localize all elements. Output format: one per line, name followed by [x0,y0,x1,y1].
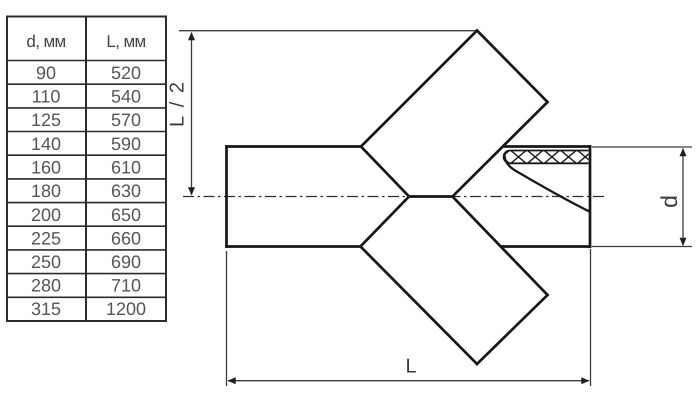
svg-text:d: d [656,195,682,208]
svg-text:160: 160 [31,158,61,178]
svg-text:520: 520 [111,63,141,83]
svg-text:1200: 1200 [106,299,146,319]
svg-text:200: 200 [31,205,61,225]
svg-text:250: 250 [31,252,61,272]
svg-text:590: 590 [111,134,141,154]
svg-text:125: 125 [31,110,61,130]
svg-text:690: 690 [111,252,141,272]
svg-text:570: 570 [111,110,141,130]
svg-text:L: L [405,356,416,378]
svg-text:650: 650 [111,205,141,225]
svg-text:630: 630 [111,181,141,201]
svg-text:d, мм: d, мм [26,32,65,51]
svg-text:610: 610 [111,158,141,178]
svg-text:180: 180 [31,181,61,201]
svg-text:90: 90 [36,63,56,83]
svg-text:540: 540 [111,87,141,107]
svg-text:140: 140 [31,134,61,154]
svg-text:225: 225 [31,229,61,249]
svg-text:710: 710 [111,276,141,296]
svg-text:280: 280 [31,276,61,296]
svg-text:110: 110 [32,87,61,107]
svg-text:315: 315 [31,299,61,319]
svg-text:L, мм: L, мм [106,32,145,51]
svg-text:660: 660 [111,229,141,249]
svg-text:L/2: L/2 [167,82,189,127]
